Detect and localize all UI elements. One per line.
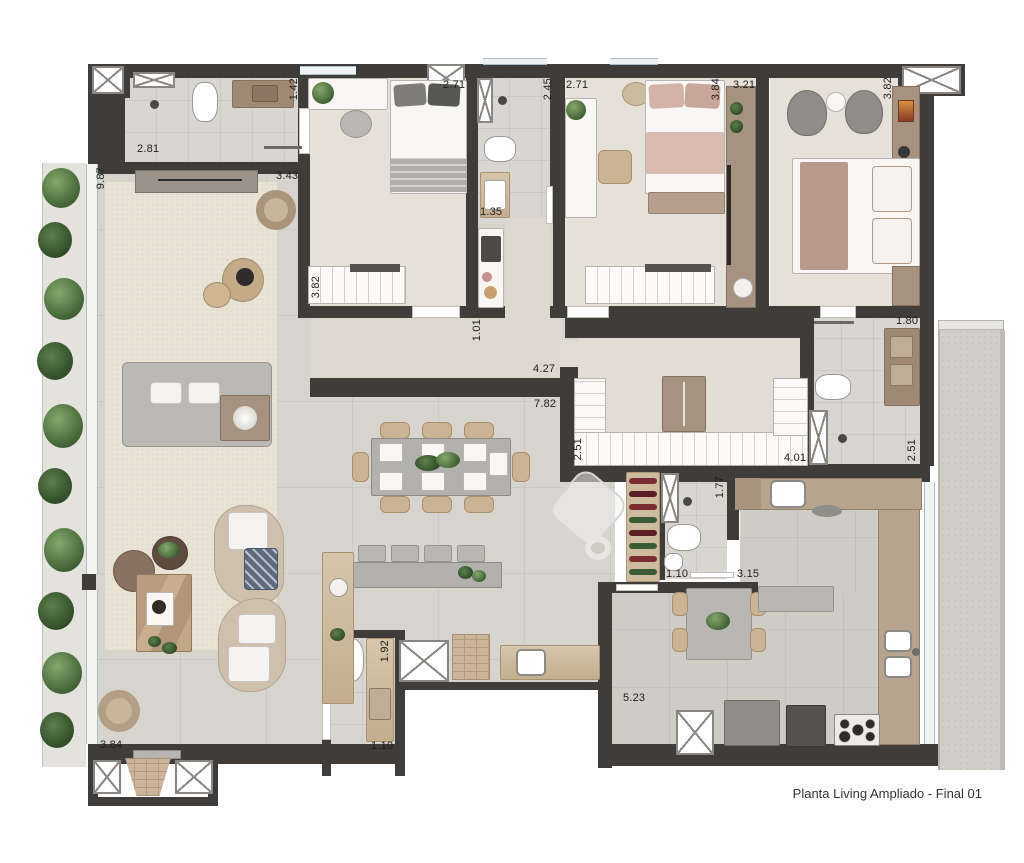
- dimension-label: 2.51: [906, 439, 918, 461]
- dimension-label: 1.10: [666, 568, 688, 580]
- dimension-label: 3.43: [276, 170, 298, 182]
- dimension-label: 2.71: [443, 79, 465, 91]
- dimension-label: 1.35: [480, 206, 502, 218]
- dimension-label: 9.87: [95, 167, 107, 189]
- dimension-label: 3.84: [710, 78, 722, 100]
- dimension-label: 2.81: [137, 143, 159, 155]
- dimension-label: 3.82: [882, 77, 894, 99]
- dimension-label: 7.82: [534, 398, 556, 410]
- dimension-label: 1.42: [288, 78, 300, 100]
- dimension-label: 4.01: [784, 452, 806, 464]
- dimension-label: 1.77: [714, 476, 726, 498]
- dimension-label: 3.21: [733, 79, 755, 91]
- dimension-label: 2.71: [566, 79, 588, 91]
- dimension-label: 4.27: [533, 363, 555, 375]
- dimension-label: 5.23: [623, 692, 645, 704]
- dimension-label: 1.80: [896, 315, 918, 327]
- dimension-label: 3.15: [737, 568, 759, 580]
- dimension-label: 1.10: [371, 740, 393, 752]
- dimension-label: 1.01: [471, 319, 483, 341]
- dimension-label: 2.45: [542, 78, 554, 100]
- dimension-label: 3.82: [310, 276, 322, 298]
- dimension-label: 1.92: [379, 640, 391, 662]
- dimension-label: 3.84: [100, 739, 122, 751]
- floor-plan: 2.811.422.712.452.713.843.213.829.873.43…: [0, 0, 1024, 863]
- plan-title: Planta Living Ampliado - Final 01: [782, 786, 982, 801]
- dimension-label: 2.51: [572, 438, 584, 460]
- dimension-labels-layer: 2.811.422.712.452.713.843.213.829.873.43…: [0, 0, 1024, 863]
